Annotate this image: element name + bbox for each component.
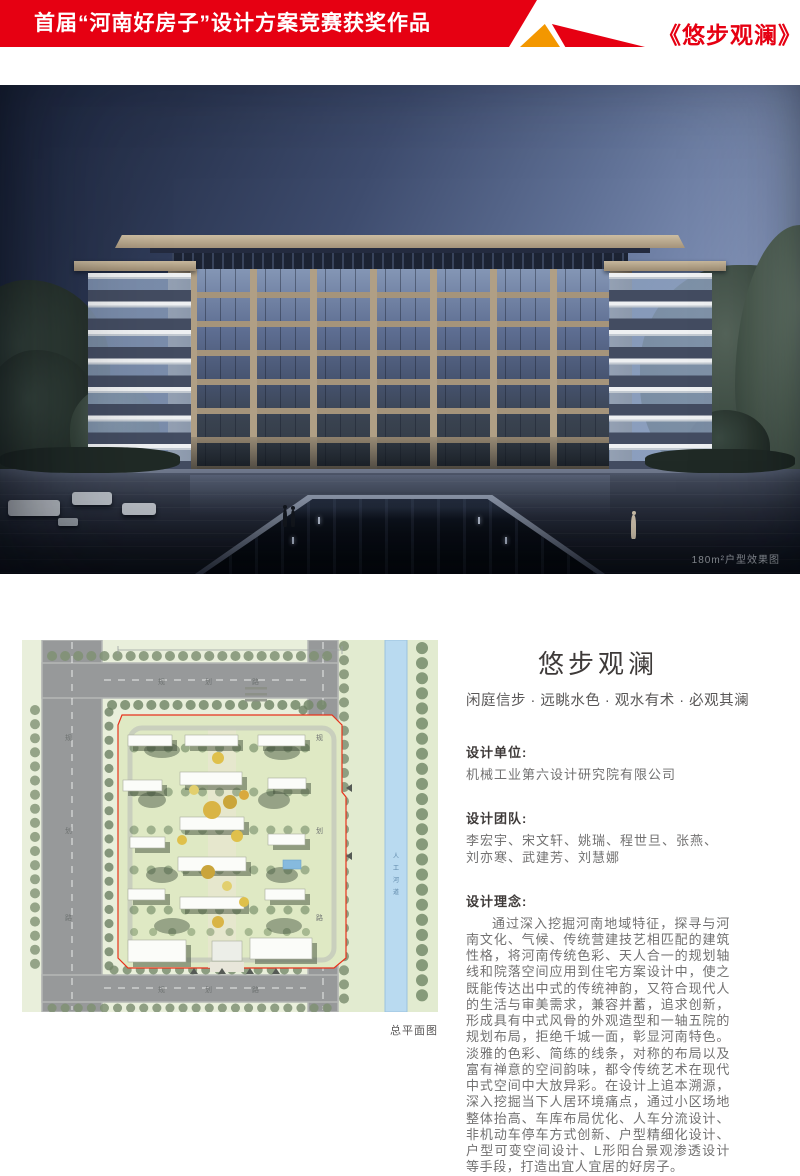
outdoor-sofa: [122, 503, 156, 515]
project-title: 《悠步观澜》: [658, 16, 800, 50]
design-unit-value: 机械工业第六设计研究院有限公司: [466, 766, 730, 784]
site-plan-drawing: 规 划 路 规 划 路 规 划 路 规 划 路 人 工 河 道: [22, 640, 438, 1012]
artificial-river: [385, 640, 407, 1012]
svg-text:规: 规: [158, 677, 165, 686]
bollard-light: [505, 537, 507, 544]
balcony-wing-left: [88, 273, 191, 473]
person-figure: [291, 510, 295, 527]
svg-text:规: 规: [316, 733, 323, 742]
page-subtitle: 闲庭信步 · 远眺水色 · 观水有术 · 必观其澜: [466, 689, 730, 710]
svg-text:工: 工: [393, 865, 399, 872]
clerestory-band: [172, 253, 628, 269]
wing-roof-left: [74, 261, 196, 271]
site-plan: 规 划 路 规 划 路 规 划 路 规 划 路 人 工 河 道: [22, 640, 438, 1012]
outdoor-sofa: [8, 500, 60, 516]
design-team-label: 设计团队:: [466, 808, 730, 827]
person-figure: [283, 509, 287, 527]
svg-text:路: 路: [65, 913, 72, 922]
banner-title: 首届“河南好房子”设计方案竞赛获奖作品: [34, 0, 431, 47]
hedge-left: [0, 447, 180, 473]
design-unit-label: 设计单位:: [466, 742, 730, 761]
info-column: 悠步观澜 闲庭信步 · 远眺水色 · 观水有术 · 必观其澜 设计单位: 机械工…: [466, 644, 730, 1176]
page-title: 悠步观澜: [466, 644, 730, 681]
render-caption: 180m²户型效果图: [692, 551, 780, 566]
svg-text:河: 河: [393, 876, 399, 884]
svg-text:人: 人: [393, 853, 399, 860]
person-figure: [631, 515, 636, 539]
building-rendering: 180m²户型效果图: [0, 85, 800, 574]
entry-plaza: [210, 962, 244, 972]
header-banner: 首届“河南好房子”设计方案竞赛获奖作品: [0, 0, 537, 47]
design-concept-text: 通过深入挖掘河南地域特征，探寻与河南文化、气候、传统营建技艺相匹配的建筑性格，将…: [466, 916, 730, 1176]
svg-text:路: 路: [316, 913, 323, 922]
design-team-section: 设计团队: 李宏宇、宋文轩、姚瑞、程世旦、张燕、刘亦寒、武建芳、刘慧娜: [466, 808, 730, 867]
poster-page: { "header": { "banner_title": "首届“河南好房子”…: [0, 0, 800, 1131]
main-roof: [115, 235, 685, 248]
plan-caption: 总平面图: [22, 1022, 438, 1038]
svg-text:划: 划: [205, 985, 212, 994]
svg-text:规: 规: [158, 985, 165, 994]
wing-roof-right: [604, 261, 726, 271]
bollard-light: [478, 517, 480, 524]
ground-floor-glass: [190, 437, 610, 473]
outdoor-table: [58, 518, 78, 526]
bollard-light: [292, 537, 294, 544]
svg-text:划: 划: [65, 826, 72, 835]
svg-text:路: 路: [252, 985, 259, 994]
terrace-step: [60, 469, 740, 473]
design-concept-section: 设计理念: 通过深入挖掘河南地域特征，探寻与河南文化、气候、传统营建技艺相匹配的…: [466, 891, 730, 1176]
svg-text:划: 划: [316, 826, 323, 835]
design-unit-section: 设计单位: 机械工业第六设计研究院有限公司: [466, 742, 730, 784]
landscape-pool: [283, 860, 301, 869]
svg-text:路: 路: [252, 677, 259, 686]
hedge-right: [645, 449, 795, 473]
svg-text:规: 规: [65, 733, 72, 742]
micro-annotations: [245, 687, 267, 702]
svg-text:道: 道: [393, 888, 399, 896]
design-team-value: 李宏宇、宋文轩、姚瑞、程世旦、张燕、刘亦寒、武建芳、刘慧娜: [466, 832, 730, 867]
bollard-light: [318, 517, 320, 524]
design-concept-label: 设计理念:: [466, 891, 730, 910]
mountain-logo-red-icon: [549, 24, 645, 47]
svg-text:划: 划: [205, 677, 212, 686]
balcony-wing-right: [609, 273, 712, 473]
outdoor-sofa: [72, 492, 112, 505]
